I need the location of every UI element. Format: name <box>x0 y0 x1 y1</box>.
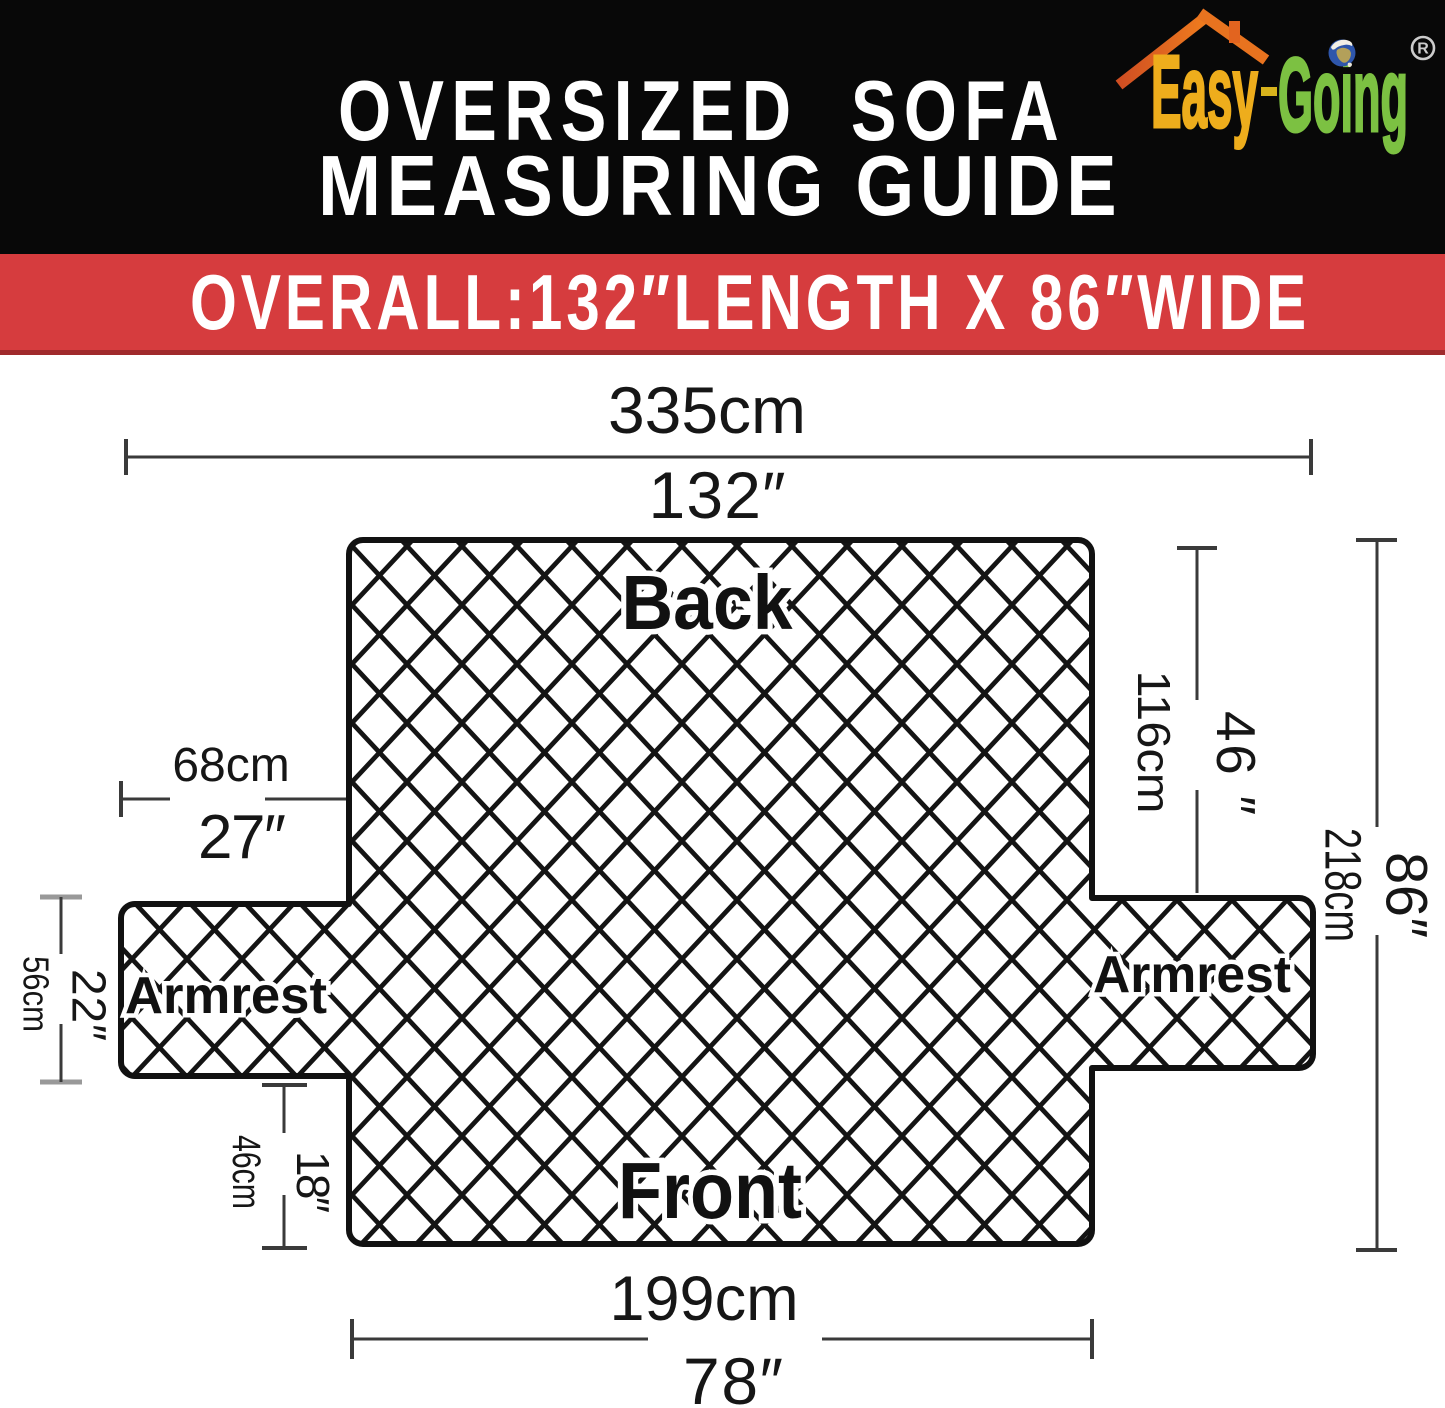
svg-text:Back: Back <box>622 560 793 646</box>
svg-text:116cm: 116cm <box>1128 671 1180 814</box>
svg-text:Front: Front <box>618 1146 802 1235</box>
svg-text:Armrest: Armrest <box>125 967 327 1025</box>
svg-text:86″: 86″ <box>1374 852 1439 938</box>
svg-text:18″: 18″ <box>287 1151 339 1213</box>
svg-text:Easy: Easy <box>1151 34 1258 149</box>
svg-text:132″: 132″ <box>649 458 786 532</box>
svg-text:OVERALL:132″LENGTH X 86″WIDE: OVERALL:132″LENGTH X 86″WIDE <box>190 258 1310 346</box>
svg-text:46cm: 46cm <box>224 1135 268 1209</box>
svg-text:22″: 22″ <box>62 969 115 1041</box>
svg-text:68cm: 68cm <box>172 739 289 792</box>
svg-text:78″: 78″ <box>683 1344 783 1408</box>
svg-text:R: R <box>1417 41 1429 58</box>
svg-text:218cm: 218cm <box>1315 828 1372 942</box>
svg-text:335cm: 335cm <box>608 373 806 447</box>
svg-text:46 ″: 46 ″ <box>1205 711 1267 815</box>
svg-text:27″: 27″ <box>198 803 286 872</box>
svg-text:199cm: 199cm <box>609 1264 798 1334</box>
svg-text:Armrest: Armrest <box>1093 946 1291 1004</box>
svg-text:MEASURING GUIDE: MEASURING GUIDE <box>318 139 1122 234</box>
svg-text:56cm: 56cm <box>16 956 57 1032</box>
